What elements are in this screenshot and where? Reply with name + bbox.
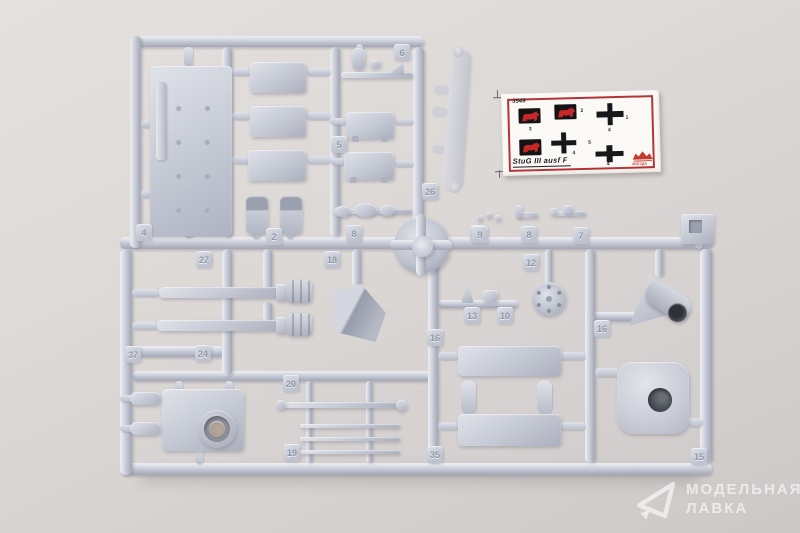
part-machine-gun bbox=[563, 205, 573, 214]
part-number-tag: 27 bbox=[196, 251, 212, 268]
part-number-tag: 26 bbox=[422, 183, 438, 200]
toolbox-hinge bbox=[352, 136, 359, 142]
part-muzzle-brake bbox=[286, 280, 312, 303]
part-number-tag: 8 bbox=[521, 226, 537, 243]
part-small-cone bbox=[461, 284, 474, 303]
part-rod bbox=[300, 437, 400, 441]
sprue-lug bbox=[132, 289, 159, 297]
bracket-hole bbox=[689, 220, 702, 233]
registration-mark bbox=[497, 90, 498, 98]
fender-pin bbox=[449, 182, 461, 194]
sprue-runner bbox=[263, 249, 272, 291]
sprue-lug bbox=[195, 450, 203, 464]
part-number-tag: 9 bbox=[472, 226, 488, 243]
decal-label: 4 bbox=[608, 127, 611, 133]
sprue-lug bbox=[687, 418, 702, 427]
product-photo: 4 2 6 5 26 8 4 27 18 37 24 20 19 9 8 7 1… bbox=[0, 0, 800, 533]
part-number-tag: 16 bbox=[594, 320, 610, 337]
sprue-lug bbox=[306, 68, 330, 76]
elephant-icon bbox=[521, 141, 540, 153]
fender-lug bbox=[432, 107, 448, 118]
sprue-lug bbox=[537, 380, 552, 414]
part-rod bbox=[300, 424, 400, 428]
modelnaya-lavka-logo-icon bbox=[634, 476, 680, 524]
part-small bbox=[370, 60, 381, 68]
part-number-tag: 6 bbox=[394, 44, 410, 61]
part-toolbox bbox=[344, 152, 394, 180]
sprue-lug bbox=[595, 368, 619, 377]
sprue-lug bbox=[461, 380, 476, 414]
decal-brand: ЗВЕЗДА bbox=[632, 161, 647, 166]
watermark-line2: ЛАВКА bbox=[686, 500, 800, 519]
registration-mark bbox=[499, 170, 500, 178]
sprue-runner bbox=[352, 249, 361, 287]
part-small bbox=[486, 212, 492, 218]
part-number-tag: 4 bbox=[136, 224, 152, 241]
balkenkreuz-decal bbox=[595, 145, 623, 163]
part-gun-barrel bbox=[157, 320, 281, 331]
part-small bbox=[516, 205, 522, 218]
part-cupola-hatch bbox=[412, 236, 433, 257]
toolbox-hinge bbox=[381, 136, 388, 142]
part-machine-gun bbox=[550, 208, 558, 216]
part-angled-plate bbox=[334, 284, 386, 342]
part-tow-rod-end bbox=[396, 400, 407, 411]
decal-label: 2 bbox=[580, 108, 583, 114]
sprue-lug bbox=[232, 68, 250, 76]
part-number-tag: 24 bbox=[195, 345, 211, 362]
part-number-tag: 19 bbox=[284, 444, 300, 461]
sprue-runner bbox=[130, 36, 424, 47]
sprue-runner bbox=[655, 249, 663, 277]
part-fuel-tank bbox=[458, 346, 561, 376]
sprue-runner bbox=[263, 302, 272, 322]
sprue-lug bbox=[558, 352, 585, 360]
sprue-lug bbox=[394, 118, 413, 125]
part-link-chain bbox=[354, 203, 377, 217]
part-number-tag: 37 bbox=[125, 346, 141, 363]
decal-label: 4 bbox=[572, 150, 575, 156]
sprue-lug bbox=[184, 47, 193, 66]
fender-body bbox=[441, 50, 472, 191]
decal-label: 5 bbox=[588, 140, 591, 146]
part-small bbox=[477, 215, 483, 221]
toolbox-hinge bbox=[350, 177, 357, 183]
sprue-runner bbox=[120, 463, 712, 475]
part-number-tag: 15 bbox=[691, 448, 707, 465]
part-number-tag: 8 bbox=[346, 225, 362, 242]
sprue-lug bbox=[306, 156, 330, 164]
sprue-lug bbox=[438, 352, 458, 360]
gun-mount-bore-inner bbox=[209, 421, 225, 437]
sprue-lug bbox=[132, 322, 157, 330]
elephant-icon bbox=[520, 110, 539, 122]
watermark-text: МОДЕЛЬНАЯ ЛАВКА bbox=[686, 481, 800, 519]
part-number-tag: 20 bbox=[283, 375, 299, 392]
part-wheel-disc bbox=[532, 282, 566, 316]
part-fuel-tank bbox=[458, 414, 561, 446]
part-small bbox=[483, 290, 498, 302]
toolbox-hinge bbox=[381, 177, 388, 183]
sprue-runner bbox=[700, 249, 712, 463]
part-hatch bbox=[250, 62, 306, 93]
decal-label: 1 bbox=[626, 115, 629, 121]
part-number-tag: 7 bbox=[573, 227, 589, 244]
mantlet-bore bbox=[668, 303, 687, 322]
elephant-emblem-decal bbox=[554, 104, 576, 120]
decal-sheet: 3549 3 2 1 4 4 5 4 StuG III ausf F ЗВЕЗД… bbox=[501, 90, 661, 176]
part-number-tag: 12 bbox=[523, 254, 539, 271]
part-number-tag: 16 bbox=[427, 329, 443, 346]
part-number-tag: 2 bbox=[266, 228, 282, 245]
part-number-tag: 18 bbox=[324, 251, 340, 268]
part-deck-ridge bbox=[156, 82, 166, 160]
part-small-cylinder bbox=[130, 422, 161, 435]
sprue-runner bbox=[130, 36, 141, 248]
decal-label: 4 bbox=[607, 161, 610, 167]
part-periscope bbox=[280, 196, 302, 234]
sprue-lug bbox=[232, 112, 250, 120]
part-number-tag: 10 bbox=[497, 307, 513, 324]
decal-label: 3 bbox=[529, 126, 532, 132]
part-hatch bbox=[248, 150, 306, 181]
fender-lug bbox=[434, 85, 450, 96]
part-number-tag: 5 bbox=[331, 136, 347, 153]
sprue-runner bbox=[222, 249, 232, 376]
watermark-line1: МОДЕЛЬНАЯ bbox=[686, 481, 800, 500]
part-periscope bbox=[246, 196, 268, 234]
part-muzzle-brake bbox=[286, 313, 312, 336]
fender-lug bbox=[432, 145, 446, 155]
elephant-emblem-decal bbox=[519, 139, 541, 156]
part-link-chain bbox=[380, 205, 395, 216]
elephant-emblem-decal bbox=[518, 108, 540, 124]
part-number-tag: 13 bbox=[464, 307, 480, 324]
part-small-cylinder bbox=[130, 392, 161, 405]
part-rod bbox=[300, 450, 400, 454]
sprue-runner bbox=[585, 249, 595, 463]
elephant-icon bbox=[556, 106, 575, 118]
decal-title: StuG III ausf F bbox=[513, 155, 571, 168]
part-tow-rod bbox=[283, 402, 401, 408]
part-link-chain bbox=[334, 206, 351, 217]
part-small bbox=[495, 215, 501, 221]
watermark: МОДЕЛЬНАЯ ЛАВКА bbox=[634, 476, 800, 524]
part-number-tag: 35 bbox=[427, 446, 443, 463]
part-tow-rod-end bbox=[276, 400, 286, 410]
part-small-cylinder bbox=[352, 48, 365, 70]
part-fender bbox=[427, 45, 477, 197]
decal-catalog-number: 3549 bbox=[512, 98, 526, 104]
balkenkreuz-decal bbox=[596, 103, 624, 126]
saukopf-hole bbox=[648, 388, 672, 412]
sprue-lug bbox=[558, 422, 585, 430]
sprue-runner bbox=[545, 249, 552, 285]
sprue-runner bbox=[428, 249, 438, 463]
part-hull-deck bbox=[150, 66, 232, 236]
part-hatch bbox=[250, 106, 306, 137]
sprue-runner bbox=[132, 371, 432, 381]
part-gun-barrel bbox=[159, 287, 281, 298]
sprue-lug bbox=[394, 160, 413, 167]
sprue-lug bbox=[438, 422, 458, 430]
part-toolbox bbox=[346, 112, 394, 139]
sprue-lug bbox=[306, 112, 330, 120]
zvezda-logo-icon bbox=[630, 150, 654, 162]
